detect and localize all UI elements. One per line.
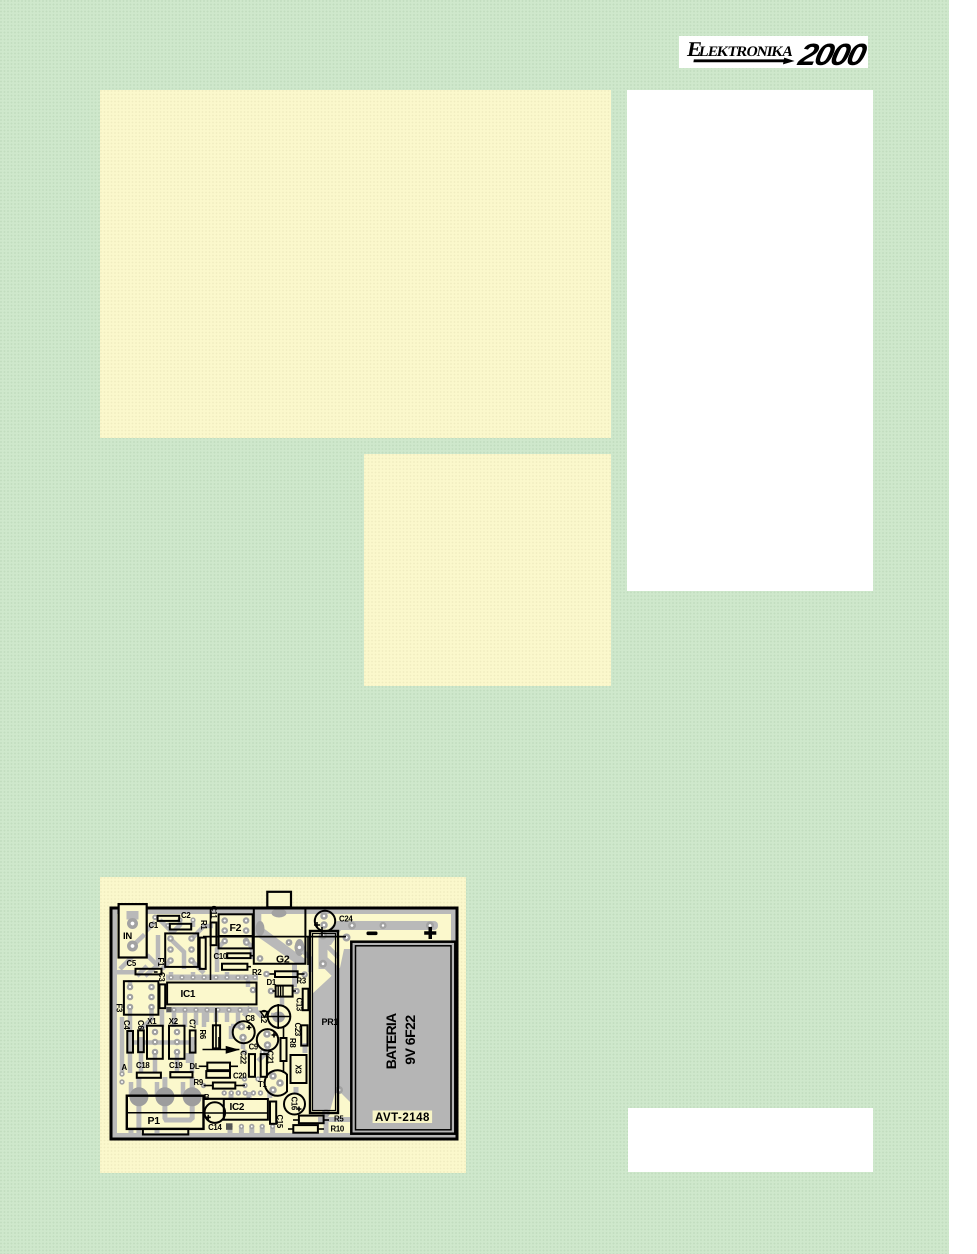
svg-text:X1: X1 [147,1017,157,1026]
svg-text:C12: C12 [259,1010,268,1024]
svg-text:LEKTRONIKA: LEKTRONIKA [698,44,795,60]
svg-text:C5: C5 [127,959,137,968]
svg-text:R9: R9 [194,1078,204,1087]
svg-text:C14: C14 [208,1123,222,1132]
svg-text:C6: C6 [136,1020,145,1030]
svg-text:AVT-2148: AVT-2148 [375,1112,430,1124]
svg-text:IC1: IC1 [181,989,196,1000]
svg-text:F1: F1 [156,958,165,967]
svg-text:C3: C3 [157,972,166,982]
svg-text:G2: G2 [276,954,290,966]
svg-text:P1: P1 [148,1115,161,1127]
svg-text:C23: C23 [293,1023,302,1037]
svg-text:DL: DL [190,1062,200,1071]
svg-text:C22: C22 [238,1051,247,1065]
svg-text:C10: C10 [214,952,228,961]
svg-text:BATERIA: BATERIA [383,1013,399,1069]
svg-text:C16: C16 [289,1097,298,1111]
svg-text:R10: R10 [331,1125,345,1134]
svg-text:C1: C1 [149,921,159,930]
svg-text:C7: C7 [187,1019,196,1028]
svg-text:C11: C11 [209,906,218,920]
svg-text:C21: C21 [265,1051,274,1065]
svg-text:C18: C18 [136,1061,150,1070]
svg-text:X3: X3 [294,1065,303,1075]
svg-text:C20: C20 [233,1072,247,1081]
svg-text:IN: IN [123,931,132,942]
svg-text:9V 6F22: 9V 6F22 [402,1015,418,1065]
svg-text:C13: C13 [294,998,303,1012]
svg-text:D1: D1 [267,978,277,987]
svg-text:C15: C15 [275,1115,284,1129]
svg-text:R3: R3 [297,977,307,986]
svg-text:F3: F3 [114,1004,123,1013]
svg-text:R2: R2 [252,968,262,977]
svg-text:IC2: IC2 [230,1102,245,1113]
svg-text:C19: C19 [169,1061,183,1070]
svg-text:R8: R8 [288,1038,297,1048]
svg-text:C9: C9 [249,1043,259,1052]
svg-text:T1: T1 [258,1080,267,1089]
svg-text:X2: X2 [169,1017,179,1026]
svg-text:PR1: PR1 [322,1017,339,1027]
svg-text:R1: R1 [199,920,208,930]
svg-text:A: A [122,1063,128,1072]
svg-text:2000: 2000 [794,39,868,68]
svg-text:C2: C2 [181,911,191,920]
svg-text:B: B [204,1093,210,1102]
svg-text:C4: C4 [122,1020,131,1030]
svg-text:R6: R6 [198,1030,207,1040]
svg-text:F2: F2 [230,922,242,934]
svg-text:C8: C8 [245,1014,255,1023]
svg-text:R5: R5 [334,1115,344,1124]
svg-text:C24: C24 [339,915,353,924]
